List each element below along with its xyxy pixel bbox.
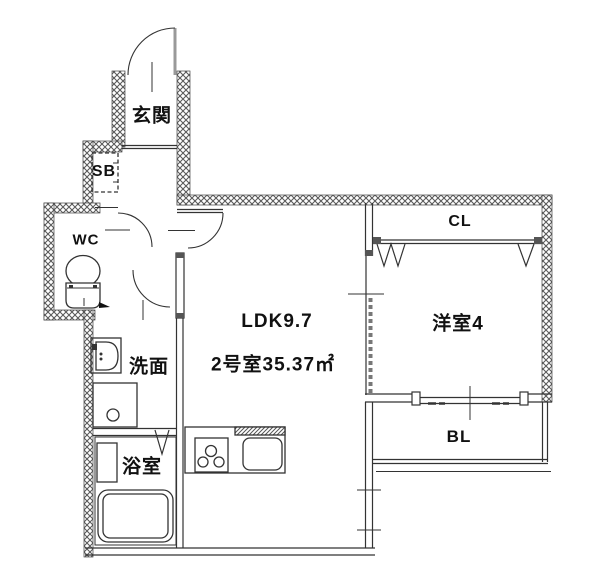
- entrance-left-wall: [112, 71, 125, 147]
- balcony-bottom-rail: [373, 460, 548, 464]
- ldk-window-ticks: [357, 490, 381, 530]
- hall-ldk-wall: [176, 253, 184, 318]
- ldk-western-wall-top: [366, 203, 373, 256]
- bath-counter: [97, 443, 117, 482]
- wc-left-wall: [44, 203, 54, 320]
- floorplan-drawing: [0, 0, 608, 569]
- door-axis-dashes: [105, 230, 195, 231]
- stove-icon: [195, 438, 228, 472]
- hall-top-wall: [177, 210, 223, 213]
- label-washroom: 洗面: [129, 352, 169, 379]
- bathroom-top-wall: [93, 429, 176, 436]
- closet-folding-door-right-icon: [518, 244, 534, 266]
- label-western-room: 洋室4: [432, 309, 484, 336]
- window-cap-left: [412, 392, 420, 405]
- closet-folding-door-left-icon: [377, 244, 405, 266]
- balcony-wall-left: [365, 394, 419, 402]
- label-ldk: LDK9.7: [241, 311, 312, 333]
- door-hinge-mark: [99, 302, 110, 308]
- entrance-step-line: [122, 146, 177, 149]
- window-cap-right: [520, 392, 528, 405]
- label-bathroom: 浴室: [122, 452, 162, 479]
- entrance-right-wall: [177, 71, 190, 205]
- floorplan-page: 玄関 SB WC 洗面 浴室 LDK9.7 2号室35.37㎡ 洋室4 CL B…: [0, 0, 608, 569]
- east-outer-wall: [542, 195, 552, 402]
- bathtub-icon: [98, 490, 173, 542]
- label-shoe-box: SB: [92, 163, 116, 181]
- washbasin-icon: [91, 338, 121, 373]
- north-outer-wall: [177, 195, 552, 205]
- balcony-right-rail: [543, 402, 548, 462]
- closet-wall: [373, 240, 542, 244]
- kitchen-hood-strip: [235, 427, 285, 435]
- kitchen-icon: [185, 427, 285, 473]
- west-outer-wall: [84, 310, 93, 557]
- bathroom-folding-door-icon: [155, 430, 169, 454]
- kitchen-sink-icon: [243, 438, 282, 470]
- washroom-door-arc: [133, 270, 170, 307]
- label-unit-area: 2号室35.37㎡: [211, 350, 335, 377]
- label-genkan: 玄関: [132, 101, 172, 128]
- washroom-ldk-wall: [177, 318, 184, 548]
- label-balcony: BL: [447, 427, 472, 447]
- south-wall: [85, 548, 375, 555]
- label-wc: WC: [73, 232, 100, 249]
- label-closet: CL: [448, 213, 471, 231]
- toilet-icon: [66, 256, 110, 309]
- washer-space-icon: [93, 383, 137, 427]
- ldk-right-wall-lower: [366, 402, 373, 548]
